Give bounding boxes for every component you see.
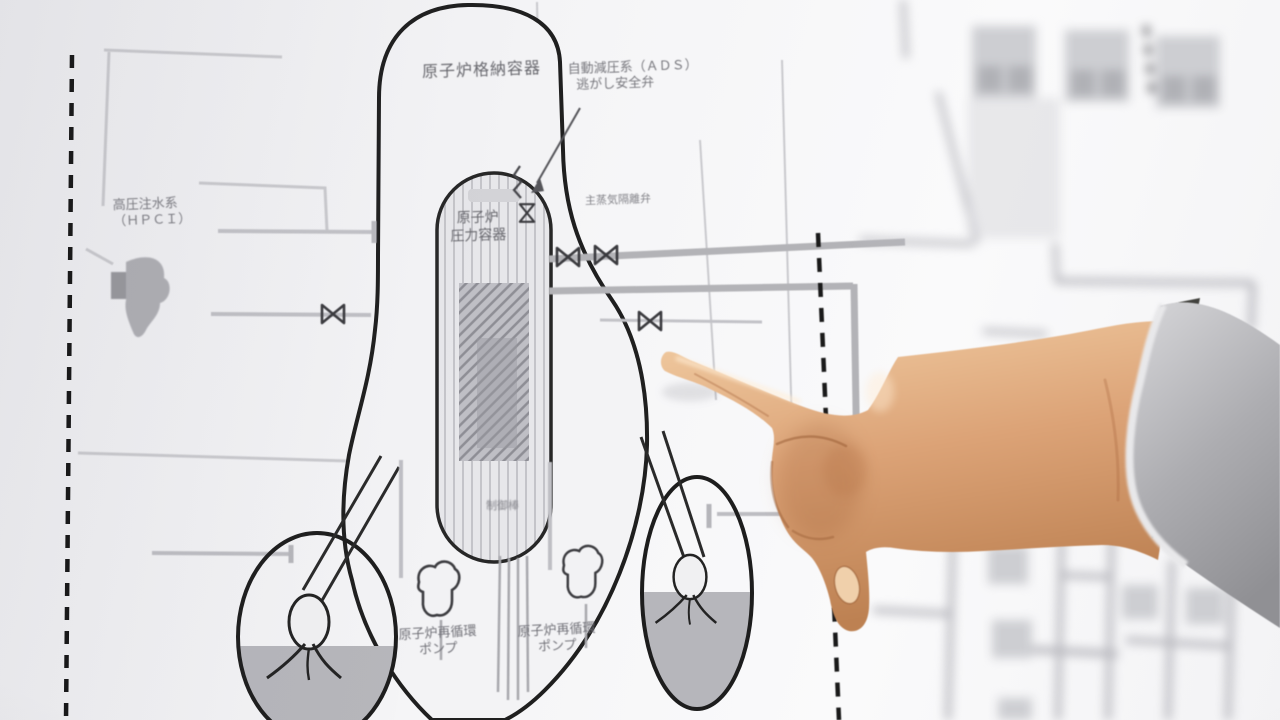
recirc-loop-right (640, 431, 756, 714)
reactor-schematic (0, 0, 1280, 720)
blurred-equipment-boxes (968, 26, 1224, 720)
hpci-pump-icon (111, 257, 170, 337)
rpv-outline (437, 173, 551, 562)
blurred-background-diagram (860, 0, 1253, 720)
photo-of-reactor-diagram: 原子炉格納容器 自動減圧系（ＡＤＳ） 逃がし安全弁 主蒸気隔離弁 原子炉 圧力容… (0, 0, 1280, 720)
left-piping (211, 221, 374, 315)
